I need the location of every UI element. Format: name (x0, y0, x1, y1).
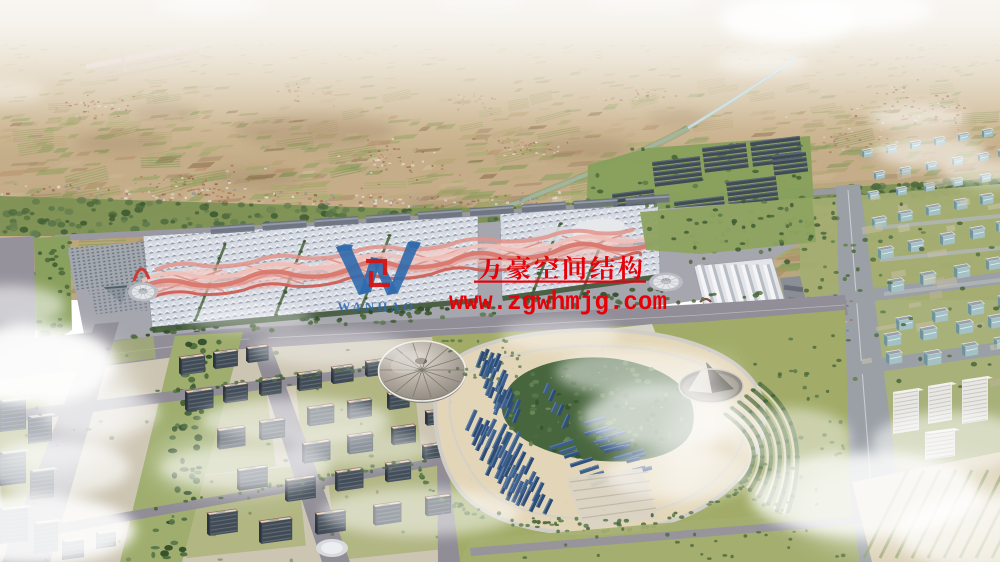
svg-text:www.zgwhmjg.com: www.zgwhmjg.com (449, 287, 667, 317)
svg-text:WANHAO: WANHAO (337, 299, 416, 314)
